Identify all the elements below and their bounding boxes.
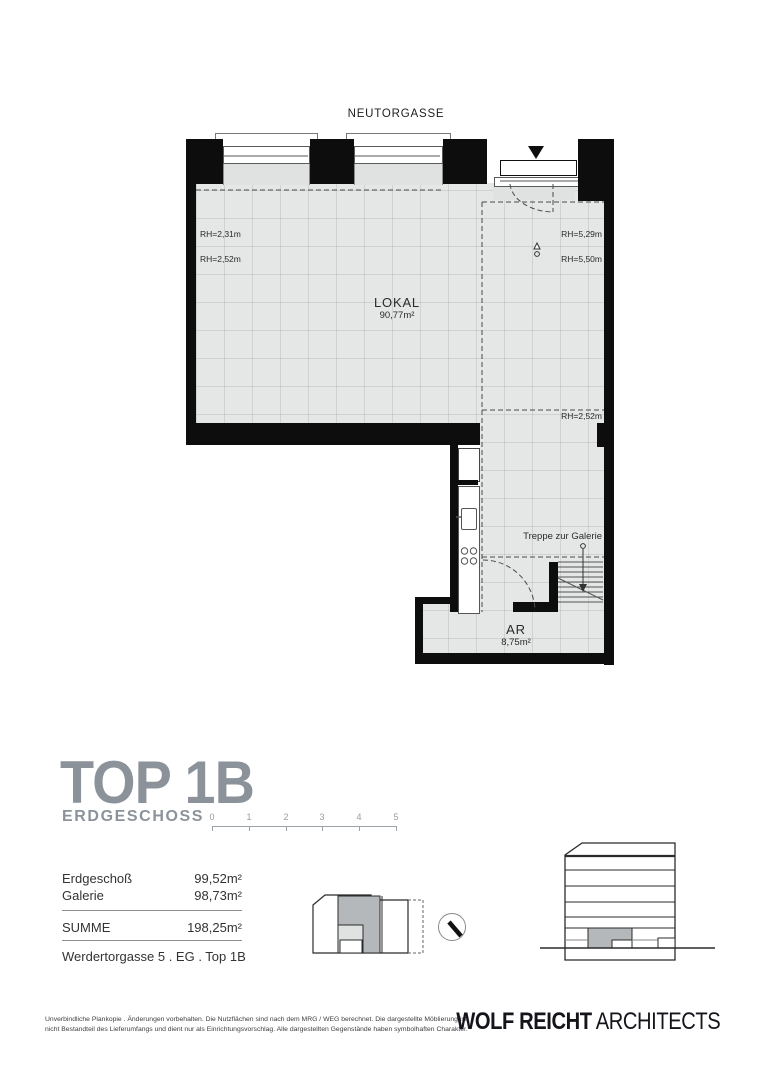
room-height-label: RH=2,31m	[200, 229, 241, 239]
wall-segment	[443, 139, 487, 184]
plan-page: { "street_label": "NEUTORGASSE", "plan":…	[0, 0, 764, 1080]
wall-segment	[458, 480, 478, 485]
architect-logo: WOLF REICHT ARCHITECTS	[456, 1008, 720, 1036]
floor-hall	[480, 423, 604, 612]
page-title: TOP 1B	[60, 748, 254, 817]
address-line: Werdertorgasse 5 . EG . Top 1B	[62, 949, 246, 964]
wall-segment	[310, 139, 354, 184]
scale-line	[212, 826, 397, 827]
logo-suffix: ARCHITECTS	[595, 1008, 720, 1035]
row-value: 98,73m²	[194, 888, 242, 903]
room-height-label: RH=5,50m	[552, 254, 602, 264]
entrance-threshold	[494, 177, 582, 187]
scale-tick-label: 1	[242, 812, 256, 822]
key-plan	[300, 885, 485, 965]
wall-segment	[549, 562, 558, 612]
room-height-label: RH=5,29m	[552, 229, 602, 239]
street-label: NEUTORGASSE	[346, 108, 446, 120]
table-row: Erdgeschoß 99,52m²	[62, 871, 242, 886]
window-niche	[223, 163, 310, 185]
window	[223, 146, 310, 164]
kitchen-sink	[461, 508, 477, 530]
room-height-label: RH=2,52m	[200, 254, 241, 264]
scale-tick	[212, 826, 213, 831]
entrance-arrow-icon	[528, 146, 544, 159]
scale-tick	[359, 826, 360, 831]
row-label: Galerie	[62, 888, 104, 903]
window	[354, 146, 443, 164]
wall-segment	[597, 423, 614, 447]
shaft	[458, 448, 480, 482]
row-value: 99,52m²	[194, 871, 242, 886]
scale-tick-label: 4	[352, 812, 366, 822]
stairs-label: Treppe zur Galerie	[516, 531, 602, 542]
floor-plan: NEUTORGASSE	[0, 0, 764, 700]
table-total-row: SUMME 198,25m²	[62, 920, 242, 935]
entrance-door	[500, 160, 577, 176]
disclaimer-line: Unverbindliche Plankopie . Änderungen vo…	[45, 1015, 468, 1025]
disclaimer-line: nicht Bestandteil des Lieferumfangs und …	[45, 1025, 468, 1035]
table-row: Galerie 98,73m²	[62, 888, 242, 903]
building-elevation	[535, 838, 720, 966]
room-area-lokal: 90,77m²	[347, 310, 447, 321]
scale-tick	[286, 826, 287, 831]
wall-segment	[415, 653, 614, 664]
room-area-ar: 8,75m²	[486, 637, 546, 648]
scale-tick-label: 3	[315, 812, 329, 822]
room-name-ar: AR	[486, 622, 546, 637]
scale-tick-label: 2	[279, 812, 293, 822]
scale-tick-label: 5	[389, 812, 403, 822]
scale-tick-label: 0	[205, 812, 219, 822]
north-arrow-icon	[439, 914, 466, 941]
disclaimer: Unverbindliche Plankopie . Änderungen vo…	[45, 1015, 468, 1035]
scale-tick	[249, 826, 250, 831]
kitchen-counter	[458, 486, 480, 614]
logo-name: WOLF REICHT	[456, 1008, 591, 1035]
table-divider	[62, 910, 242, 911]
wall-segment	[186, 423, 480, 445]
total-label: SUMME	[62, 920, 110, 935]
wall-segment	[450, 445, 458, 612]
scale-tick	[322, 826, 323, 831]
total-value: 198,25m²	[187, 920, 242, 935]
page-subtitle: ERDGESCHOSS	[62, 808, 204, 826]
table-divider	[62, 940, 242, 941]
wall-segment	[186, 160, 196, 445]
room-name-lokal: LOKAL	[347, 295, 447, 310]
window-niche	[354, 163, 443, 185]
room-height-label: RH=2,52m	[552, 411, 602, 421]
row-label: Erdgeschoß	[62, 871, 132, 886]
scale-tick	[396, 826, 397, 831]
wall-segment	[604, 160, 614, 665]
